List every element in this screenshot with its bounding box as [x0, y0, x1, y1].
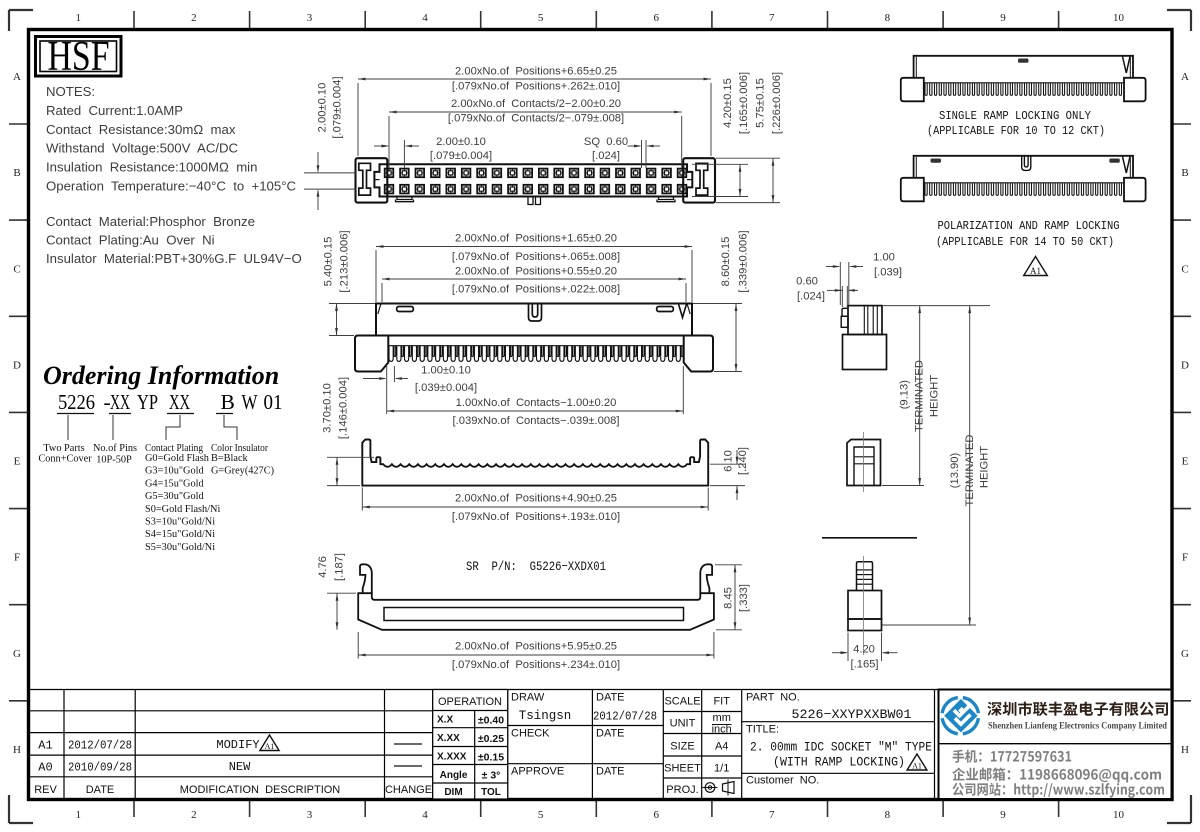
- svg-text:S3=10u"Gold/Ni: S3=10u"Gold/Ni: [145, 517, 215, 528]
- svg-text:X.XX: X.XX: [437, 733, 460, 744]
- svg-text:2010/09/28: 2010/09/28: [68, 761, 132, 775]
- svg-text:Insulator Material:PBT+30%G.F: Insulator Material:PBT+30%G.F UL94V−O: [46, 251, 302, 266]
- svg-text:1.00xNo.of Contacts−1.00±0.20: 1.00xNo.of Contacts−1.00±0.20: [456, 397, 617, 409]
- svg-text:[.039±0.004]: [.039±0.004]: [415, 382, 477, 394]
- svg-text:3.70±0.10: 3.70±0.10: [321, 383, 333, 433]
- svg-text:2: 2: [191, 12, 197, 24]
- svg-text:S0=Gold Flash/Ni: S0=Gold Flash/Ni: [145, 504, 220, 515]
- svg-text:2. 00mm IDC SOCKET "M" TYPE: 2. 00mm IDC SOCKET "M" TYPE: [750, 741, 932, 755]
- svg-text:SR P/N: G5226−XXDX01: SR P/N: G5226−XXDX01: [466, 559, 606, 574]
- svg-text:8: 8: [885, 12, 891, 24]
- svg-text:Insulation Resistance:1000MΩ: Insulation Resistance:1000MΩ min: [46, 160, 257, 175]
- svg-text:TOL: TOL: [481, 787, 501, 798]
- svg-text:4.20: 4.20: [853, 644, 875, 656]
- svg-text:REV: REV: [34, 784, 57, 796]
- svg-text:G5=30u"Gold: G5=30u"Gold: [145, 491, 204, 502]
- svg-text:DRAW: DRAW: [511, 692, 545, 704]
- svg-text:H: H: [1181, 744, 1189, 756]
- svg-text:9: 9: [1000, 809, 1006, 821]
- svg-text:C: C: [1181, 263, 1188, 275]
- svg-text:[.079±0.004]: [.079±0.004]: [430, 150, 492, 162]
- svg-text:HEIGHT: HEIGHT: [928, 375, 940, 417]
- svg-text:1.00: 1.00: [873, 252, 895, 264]
- svg-text:(APPLICABLE FOR 10 TO 12 CKT): (APPLICABLE FOR 10 TO 12 CKT): [927, 124, 1105, 138]
- svg-text:DATE: DATE: [596, 728, 625, 740]
- svg-text:A: A: [1181, 71, 1189, 83]
- svg-text:YP: YP: [137, 390, 158, 414]
- svg-text:DIM: DIM: [444, 787, 462, 798]
- svg-text:D: D: [13, 359, 21, 371]
- svg-text:(WITH RAMP LOCKING): (WITH RAMP LOCKING): [773, 756, 905, 770]
- svg-text:[.079xNo.of Positions+.065±.0: [.079xNo.of Positions+.065±.008]: [452, 251, 620, 263]
- svg-text:A: A: [13, 71, 21, 83]
- svg-text:TERMINATED: TERMINATED: [964, 435, 976, 507]
- svg-text:A1: A1: [265, 742, 275, 751]
- svg-text:[.165±0.006]: [.165±0.006]: [738, 72, 750, 134]
- svg-text:1/1: 1/1: [714, 763, 729, 775]
- svg-text:G4=15u"Gold: G4=15u"Gold: [145, 478, 204, 489]
- svg-text:[.226±0.006]: [.226±0.006]: [771, 72, 783, 134]
- svg-text:8: 8: [885, 809, 891, 821]
- svg-text:3: 3: [307, 809, 313, 821]
- svg-text:SHEET: SHEET: [664, 763, 701, 775]
- svg-text:G3=10u"Gold: G3=10u"Gold: [145, 466, 204, 477]
- svg-text:B: B: [1181, 167, 1188, 179]
- svg-text:7: 7: [769, 12, 775, 24]
- svg-text:[.079xNo.of Positions+.234±.0: [.079xNo.of Positions+.234±.010]: [452, 659, 620, 671]
- svg-text:UNIT: UNIT: [670, 718, 696, 730]
- svg-text:B=Black: B=Black: [211, 453, 249, 464]
- svg-text:X.X: X.X: [437, 715, 453, 726]
- svg-text:[.079xNo.of Positions+.022±.0: [.079xNo.of Positions+.022±.008]: [452, 284, 620, 296]
- svg-text:S4=15u"Gold/Ni: S4=15u"Gold/Ni: [145, 529, 215, 540]
- svg-text:F: F: [1182, 552, 1188, 564]
- svg-text:A0: A0: [38, 761, 52, 775]
- svg-text:5.75±0.15: 5.75±0.15: [754, 78, 766, 128]
- svg-text:CHECK: CHECK: [511, 728, 550, 740]
- svg-text:Customer NO.: Customer NO.: [746, 775, 819, 787]
- svg-text:POLARIZATION AND RAMP LOCKING: POLARIZATION AND RAMP LOCKING: [938, 219, 1120, 233]
- svg-text:[.333]: [.333]: [738, 584, 750, 612]
- svg-text:4.76: 4.76: [317, 556, 329, 578]
- svg-text:6.10: 6.10: [722, 450, 734, 472]
- svg-text:10P-50P: 10P-50P: [96, 454, 132, 465]
- svg-text:S5=30u"Gold/Ni: S5=30u"Gold/Ni: [145, 542, 215, 553]
- svg-text:APPROVE: APPROVE: [511, 766, 564, 778]
- svg-text:2.00±0.10: 2.00±0.10: [436, 136, 486, 148]
- svg-text:[.187]: [.187]: [333, 553, 345, 581]
- svg-text:2.00±0.10: 2.00±0.10: [316, 83, 328, 133]
- svg-text:[.146±0.004]: [.146±0.004]: [337, 377, 349, 439]
- svg-text:DATE: DATE: [596, 766, 625, 778]
- svg-text:Tsingsn: Tsingsn: [519, 709, 572, 723]
- svg-text:A4: A4: [715, 741, 728, 753]
- svg-text:OPERATION: OPERATION: [438, 696, 502, 708]
- svg-text:Rated Current:1.0AMP: Rated Current:1.0AMP: [46, 103, 183, 118]
- svg-text:[.079xNo.of Positions+.262±.0: [.079xNo.of Positions+.262±.010]: [452, 81, 620, 93]
- svg-text:(9.13): (9.13): [898, 380, 910, 409]
- svg-text:8.45: 8.45: [722, 587, 734, 609]
- svg-text:SQ 0.60: SQ 0.60: [584, 136, 628, 148]
- svg-text:[.240]: [.240]: [737, 447, 749, 475]
- svg-text:PART NO.: PART NO.: [746, 692, 800, 704]
- svg-text:F: F: [14, 552, 20, 564]
- svg-text:DATE: DATE: [596, 692, 625, 704]
- svg-text:[.079xNo.of Positions+.193±.0: [.079xNo.of Positions+.193±.010]: [452, 511, 620, 523]
- svg-text:MODIFY: MODIFY: [216, 738, 259, 752]
- svg-text:2.00xNo.of Contacts/2−2.00±0.: 2.00xNo.of Contacts/2−2.00±0.20: [451, 98, 621, 110]
- svg-text:2.00xNo.of Positions+0.55±0.2: 2.00xNo.of Positions+0.55±0.20: [455, 266, 617, 278]
- svg-text:A1: A1: [1030, 266, 1041, 276]
- svg-text:Contact Material:Phosphor Br: Contact Material:Phosphor Bronze: [46, 214, 255, 229]
- svg-text:TITLE:: TITLE:: [746, 724, 779, 736]
- svg-text:CHANGE: CHANGE: [385, 784, 432, 796]
- svg-text:D: D: [1181, 359, 1189, 371]
- svg-text:PROJ.: PROJ.: [666, 784, 698, 796]
- svg-text:HEIGHT: HEIGHT: [978, 446, 990, 488]
- svg-text:2: 2: [191, 809, 197, 821]
- svg-text:[.165]: [.165]: [851, 659, 879, 671]
- svg-text:2012/07/28: 2012/07/28: [593, 710, 657, 724]
- svg-text:4: 4: [422, 12, 428, 24]
- svg-text:2.00xNo.of Positions+5.95±0.2: 2.00xNo.of Positions+5.95±0.25: [455, 641, 617, 653]
- svg-text:HSF: HSF: [48, 34, 110, 80]
- svg-text:NOTES:: NOTES:: [46, 84, 95, 99]
- svg-text:MODIFICATION DESCRIPTION: MODIFICATION DESCRIPTION: [180, 784, 341, 796]
- svg-text:10: 10: [1113, 809, 1125, 821]
- svg-text:±0.40: ±0.40: [478, 715, 504, 727]
- svg-text:7: 7: [769, 809, 775, 821]
- svg-text:[.339±0.006]: [.339±0.006]: [737, 230, 749, 292]
- svg-text:01: 01: [264, 390, 283, 414]
- svg-text:±0.25: ±0.25: [478, 733, 504, 745]
- svg-text:E: E: [14, 456, 21, 468]
- svg-text:SCALE: SCALE: [664, 696, 700, 708]
- svg-text:XX: XX: [169, 390, 190, 414]
- svg-text:± 3°: ± 3°: [482, 770, 501, 782]
- svg-text:[.024]: [.024]: [592, 150, 620, 162]
- svg-text:G: G: [13, 648, 21, 660]
- svg-text:A1: A1: [38, 739, 52, 753]
- svg-text:5226: 5226: [58, 390, 95, 414]
- svg-text:5: 5: [538, 12, 544, 24]
- svg-text:1.00±0.10: 1.00±0.10: [421, 365, 471, 377]
- svg-text:4: 4: [422, 809, 428, 821]
- svg-text:±0.15: ±0.15: [478, 752, 504, 764]
- svg-text:E: E: [1182, 456, 1189, 468]
- svg-text:5.40±0.15: 5.40±0.15: [322, 237, 334, 287]
- svg-text:(13.90): (13.90): [949, 453, 961, 489]
- svg-text:DATE: DATE: [86, 784, 115, 796]
- svg-text:SIZE: SIZE: [670, 741, 694, 753]
- svg-text:5226−XXYPXXBW01: 5226−XXYPXXBW01: [792, 707, 912, 722]
- svg-text:6: 6: [653, 12, 659, 24]
- svg-text:Operation Temperature:−40°C: Operation Temperature:−40°C to +105°C: [46, 179, 296, 194]
- svg-text:Conn+Cover: Conn+Cover: [38, 453, 92, 464]
- svg-text:inch: inch: [712, 724, 732, 736]
- svg-text:(APPLICABLE FOR 14 TO 50 CKT): (APPLICABLE FOR 14 TO 50 CKT): [936, 235, 1114, 249]
- svg-text:XX: XX: [110, 390, 130, 414]
- svg-text:[.213±0.006]: [.213±0.006]: [338, 230, 350, 292]
- svg-text:TERMINATED: TERMINATED: [913, 360, 925, 432]
- svg-text:2.00xNo.of Positions+4.90±0.2: 2.00xNo.of Positions+4.90±0.25: [455, 493, 617, 505]
- svg-text:1: 1: [76, 12, 82, 24]
- svg-text:Ordering Information: Ordering Information: [43, 361, 279, 390]
- svg-text:5: 5: [538, 809, 544, 821]
- svg-text:Angle: Angle: [440, 770, 468, 781]
- svg-text:W: W: [242, 390, 259, 414]
- svg-text:G0=Gold Flash: G0=Gold Flash: [145, 453, 210, 464]
- svg-text:[.079±0.004]: [.079±0.004]: [331, 76, 343, 138]
- svg-text:0.60: 0.60: [796, 276, 818, 288]
- svg-text:Contact Plating:Au Over Ni: Contact Plating:Au Over Ni: [46, 233, 215, 248]
- svg-text:[.079xNo.of Contacts/2−.079±.: [.079xNo.of Contacts/2−.079±.008]: [448, 113, 624, 125]
- svg-text:mm: mm: [713, 712, 731, 724]
- svg-text:X.XXX: X.XXX: [437, 752, 467, 763]
- svg-text:No.of Pins: No.of Pins: [93, 443, 137, 454]
- svg-text:B: B: [13, 167, 20, 179]
- svg-text:2.00xNo.of Positions+1.65±0.2: 2.00xNo.of Positions+1.65±0.20: [455, 233, 617, 245]
- svg-text:G: G: [1181, 648, 1189, 660]
- svg-text:8.60±0.15: 8.60±0.15: [720, 237, 732, 287]
- svg-text:A1: A1: [912, 762, 922, 771]
- svg-text:Shenzhen Lianfeng Electronics: Shenzhen Lianfeng Electronics Company Li…: [988, 722, 1168, 732]
- svg-text:G=Grey(427C): G=Grey(427C): [211, 466, 274, 477]
- svg-text:C: C: [13, 263, 20, 275]
- svg-text:Contact Resistance:30mΩ max: Contact Resistance:30mΩ max: [46, 122, 236, 137]
- svg-text:2.00xNo.of Positions+6.65±0.2: 2.00xNo.of Positions+6.65±0.25: [455, 66, 617, 78]
- svg-text:3: 3: [307, 12, 313, 24]
- svg-text:NEW: NEW: [229, 760, 251, 774]
- svg-text:1: 1: [76, 809, 82, 821]
- svg-text:2012/07/28: 2012/07/28: [68, 739, 132, 753]
- svg-text:SINGLE RAMP LOCKING ONLY: SINGLE RAMP LOCKING ONLY: [939, 109, 1091, 123]
- svg-text:4.20±0.15: 4.20±0.15: [722, 78, 734, 128]
- svg-text:6: 6: [653, 809, 659, 821]
- svg-text:H: H: [13, 744, 21, 756]
- svg-text:B: B: [221, 390, 235, 414]
- svg-text:FIT: FIT: [713, 696, 730, 708]
- svg-text:[.039xNo.of Contacts−.039±.00: [.039xNo.of Contacts−.039±.008]: [453, 415, 620, 427]
- svg-text:[.039]: [.039]: [874, 267, 902, 279]
- svg-text:Withstand Voltage:500V AC/DC: Withstand Voltage:500V AC/DC: [46, 141, 239, 156]
- svg-text:[.024]: [.024]: [797, 291, 825, 303]
- svg-text:9: 9: [1000, 12, 1006, 24]
- svg-text:10: 10: [1113, 12, 1125, 24]
